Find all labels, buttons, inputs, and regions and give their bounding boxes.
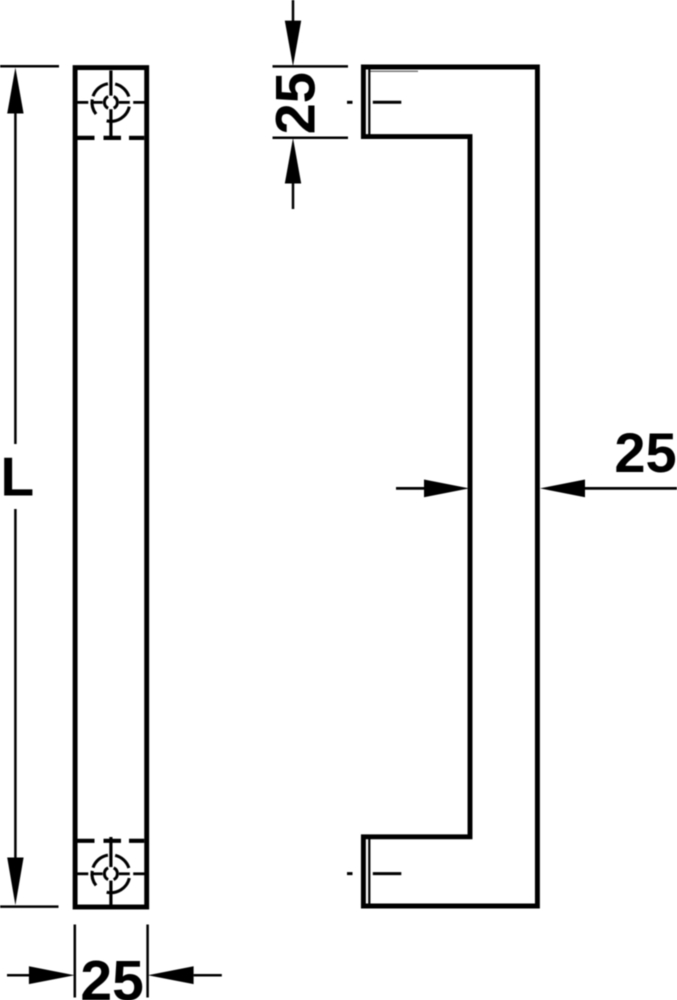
svg-text:25: 25 bbox=[614, 421, 676, 484]
svg-text:L: L bbox=[1, 445, 35, 507]
svg-text:25: 25 bbox=[263, 72, 326, 134]
svg-text:25: 25 bbox=[80, 949, 143, 1000]
